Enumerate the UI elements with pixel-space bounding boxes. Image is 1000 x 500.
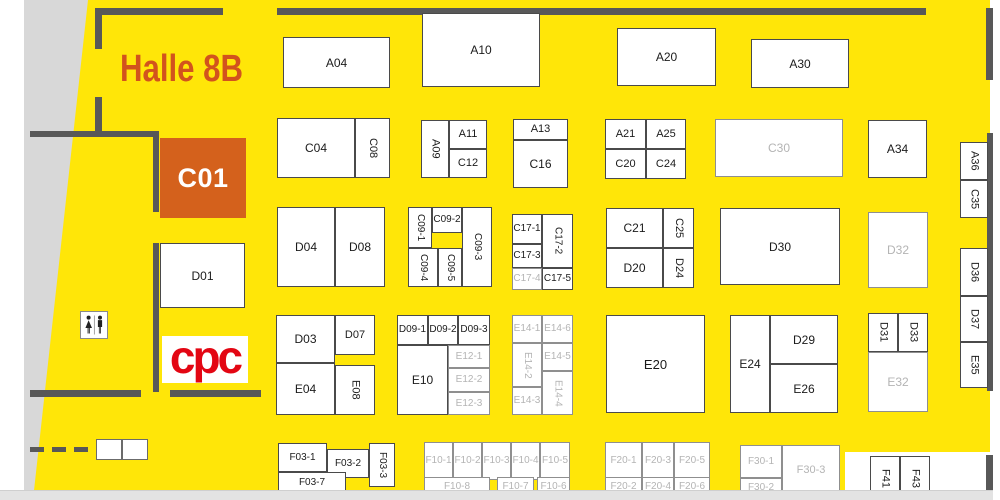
wall-segment	[95, 8, 102, 49]
booth-E20[interactable]: E20	[606, 315, 705, 413]
wall-segment	[277, 8, 926, 15]
cpc-logo: cpc	[170, 334, 240, 380]
wall-segment	[153, 131, 159, 212]
booth-F03-3[interactable]: F03-3	[369, 443, 395, 487]
booth-F10-3[interactable]: F10-3	[482, 442, 511, 480]
booth-D29[interactable]: D29	[770, 315, 838, 364]
booth-C12[interactable]: C12	[449, 149, 487, 178]
booth-C09-3[interactable]: C09-3	[462, 207, 492, 287]
cpc-logo-box: cpc	[162, 336, 248, 383]
booth-E14-2[interactable]: E14-2	[512, 343, 542, 387]
booth-E26[interactable]: E26	[770, 364, 838, 413]
booth-E08[interactable]: E08	[335, 365, 375, 415]
booth-A11[interactable]: A11	[449, 120, 487, 149]
booth-C17-2[interactable]: C17-2	[542, 214, 573, 268]
booth-D32[interactable]: D32	[868, 212, 928, 288]
booth-E04[interactable]: E04	[276, 363, 335, 415]
booth-C24[interactable]: C24	[646, 149, 686, 179]
booth-E14-4[interactable]: E14-4	[542, 371, 573, 415]
plan-right-edge	[993, 0, 1000, 500]
hall-floor-plan: Halle 8B cpc A04A10A20A30C04C08A09A11C12…	[0, 0, 1000, 500]
booth-A13[interactable]: A13	[513, 119, 568, 140]
wall-segment	[30, 447, 44, 452]
booth-E14-6[interactable]: E14-6	[542, 315, 573, 343]
booth-D09-2[interactable]: D09-2	[428, 315, 458, 345]
booth-F10-2[interactable]: F10-2	[453, 442, 482, 480]
booth-F20-1[interactable]: F20-1	[605, 442, 642, 480]
booth-D09-1[interactable]: D09-1	[397, 315, 428, 345]
booth-C17-3[interactable]: C17-3	[512, 244, 542, 268]
door	[96, 439, 122, 460]
booth-D36[interactable]: D36	[960, 248, 988, 296]
booth-E10[interactable]: E10	[397, 345, 448, 415]
booth-E12-3[interactable]: E12-3	[448, 392, 490, 415]
booth-C25[interactable]: C25	[663, 208, 694, 248]
wall-segment	[74, 447, 88, 452]
booth-C30[interactable]: C30	[715, 119, 843, 177]
booth-A36[interactable]: A36	[960, 142, 988, 180]
booth-D31[interactable]: D31	[868, 313, 898, 352]
booth-C04[interactable]: C04	[277, 118, 355, 178]
booth-D03[interactable]: D03	[276, 315, 335, 363]
booth-E32[interactable]: E32	[868, 352, 928, 412]
booth-F10-4[interactable]: F10-4	[511, 442, 540, 480]
booth-D24[interactable]: D24	[663, 248, 694, 288]
restroom-icon	[82, 313, 106, 337]
booth-A21[interactable]: A21	[605, 119, 646, 149]
booth-E14-3[interactable]: E14-3	[512, 387, 542, 415]
plan-bottom-edge	[0, 490, 1000, 500]
booth-C16[interactable]: C16	[513, 140, 568, 188]
booth-E14-1[interactable]: E14-1	[512, 315, 542, 343]
booth-A25[interactable]: A25	[646, 119, 686, 149]
booth-F30-3[interactable]: F30-3	[782, 445, 840, 495]
booth-C17-5[interactable]: C17-5	[542, 268, 573, 290]
wall-segment	[95, 8, 223, 15]
booth-F10-1[interactable]: F10-1	[424, 442, 453, 480]
booth-A09[interactable]: A09	[421, 120, 449, 178]
wall-segment	[95, 97, 102, 135]
booth-F03-1[interactable]: F03-1	[278, 443, 327, 472]
booth-D08[interactable]: D08	[335, 207, 385, 287]
wall-segment	[153, 243, 159, 392]
booth-E14-5[interactable]: E14-5	[542, 343, 573, 371]
booth-A04[interactable]: A04	[283, 37, 390, 88]
booth-F10-5[interactable]: F10-5	[540, 442, 570, 480]
door	[122, 439, 148, 460]
booth-C17-4[interactable]: C17-4	[512, 268, 542, 290]
wall-segment	[986, 8, 993, 80]
wall-segment	[170, 390, 261, 397]
booth-D04[interactable]: D04	[277, 207, 335, 287]
booth-C09-1[interactable]: C09-1	[408, 207, 432, 248]
booth-C09-4[interactable]: C09-4	[408, 248, 438, 287]
booth-C08[interactable]: C08	[355, 118, 390, 178]
booth-F30-1[interactable]: F30-1	[740, 445, 782, 478]
booth-E24[interactable]: E24	[730, 315, 770, 413]
booth-E35[interactable]: E35	[960, 342, 988, 388]
booth-A34[interactable]: A34	[868, 120, 927, 178]
booth-D37[interactable]: D37	[960, 296, 988, 342]
booth-D01[interactable]: D01	[160, 243, 245, 308]
booth-C09-5[interactable]: C09-5	[438, 248, 462, 287]
booth-E12-2[interactable]: E12-2	[448, 368, 490, 392]
booth-C09-2[interactable]: C09-2	[432, 207, 462, 233]
booth-A20[interactable]: A20	[617, 28, 716, 86]
booth-C35[interactable]: C35	[960, 180, 988, 218]
booth-D07[interactable]: D07	[335, 315, 375, 355]
booth-C01[interactable]: C01	[160, 138, 246, 218]
booth-D30[interactable]: D30	[720, 208, 840, 285]
booth-E12-1[interactable]: E12-1	[448, 345, 490, 368]
wall-segment	[30, 390, 141, 397]
wall-segment	[30, 131, 159, 137]
booth-A30[interactable]: A30	[751, 39, 849, 88]
restroom-box	[80, 311, 108, 339]
booth-A10[interactable]: A10	[422, 13, 540, 87]
booth-D20[interactable]: D20	[606, 248, 663, 288]
booth-D33[interactable]: D33	[898, 313, 928, 352]
booth-C20[interactable]: C20	[605, 149, 646, 179]
booth-F20-5[interactable]: F20-5	[674, 442, 710, 480]
booth-F20-3[interactable]: F20-3	[642, 442, 674, 480]
booth-C17-1[interactable]: C17-1	[512, 214, 542, 244]
booth-C21[interactable]: C21	[606, 208, 663, 248]
hall-title: Halle 8B	[120, 48, 243, 91]
booth-D09-3[interactable]: D09-3	[458, 315, 490, 345]
wall-segment	[52, 447, 66, 452]
